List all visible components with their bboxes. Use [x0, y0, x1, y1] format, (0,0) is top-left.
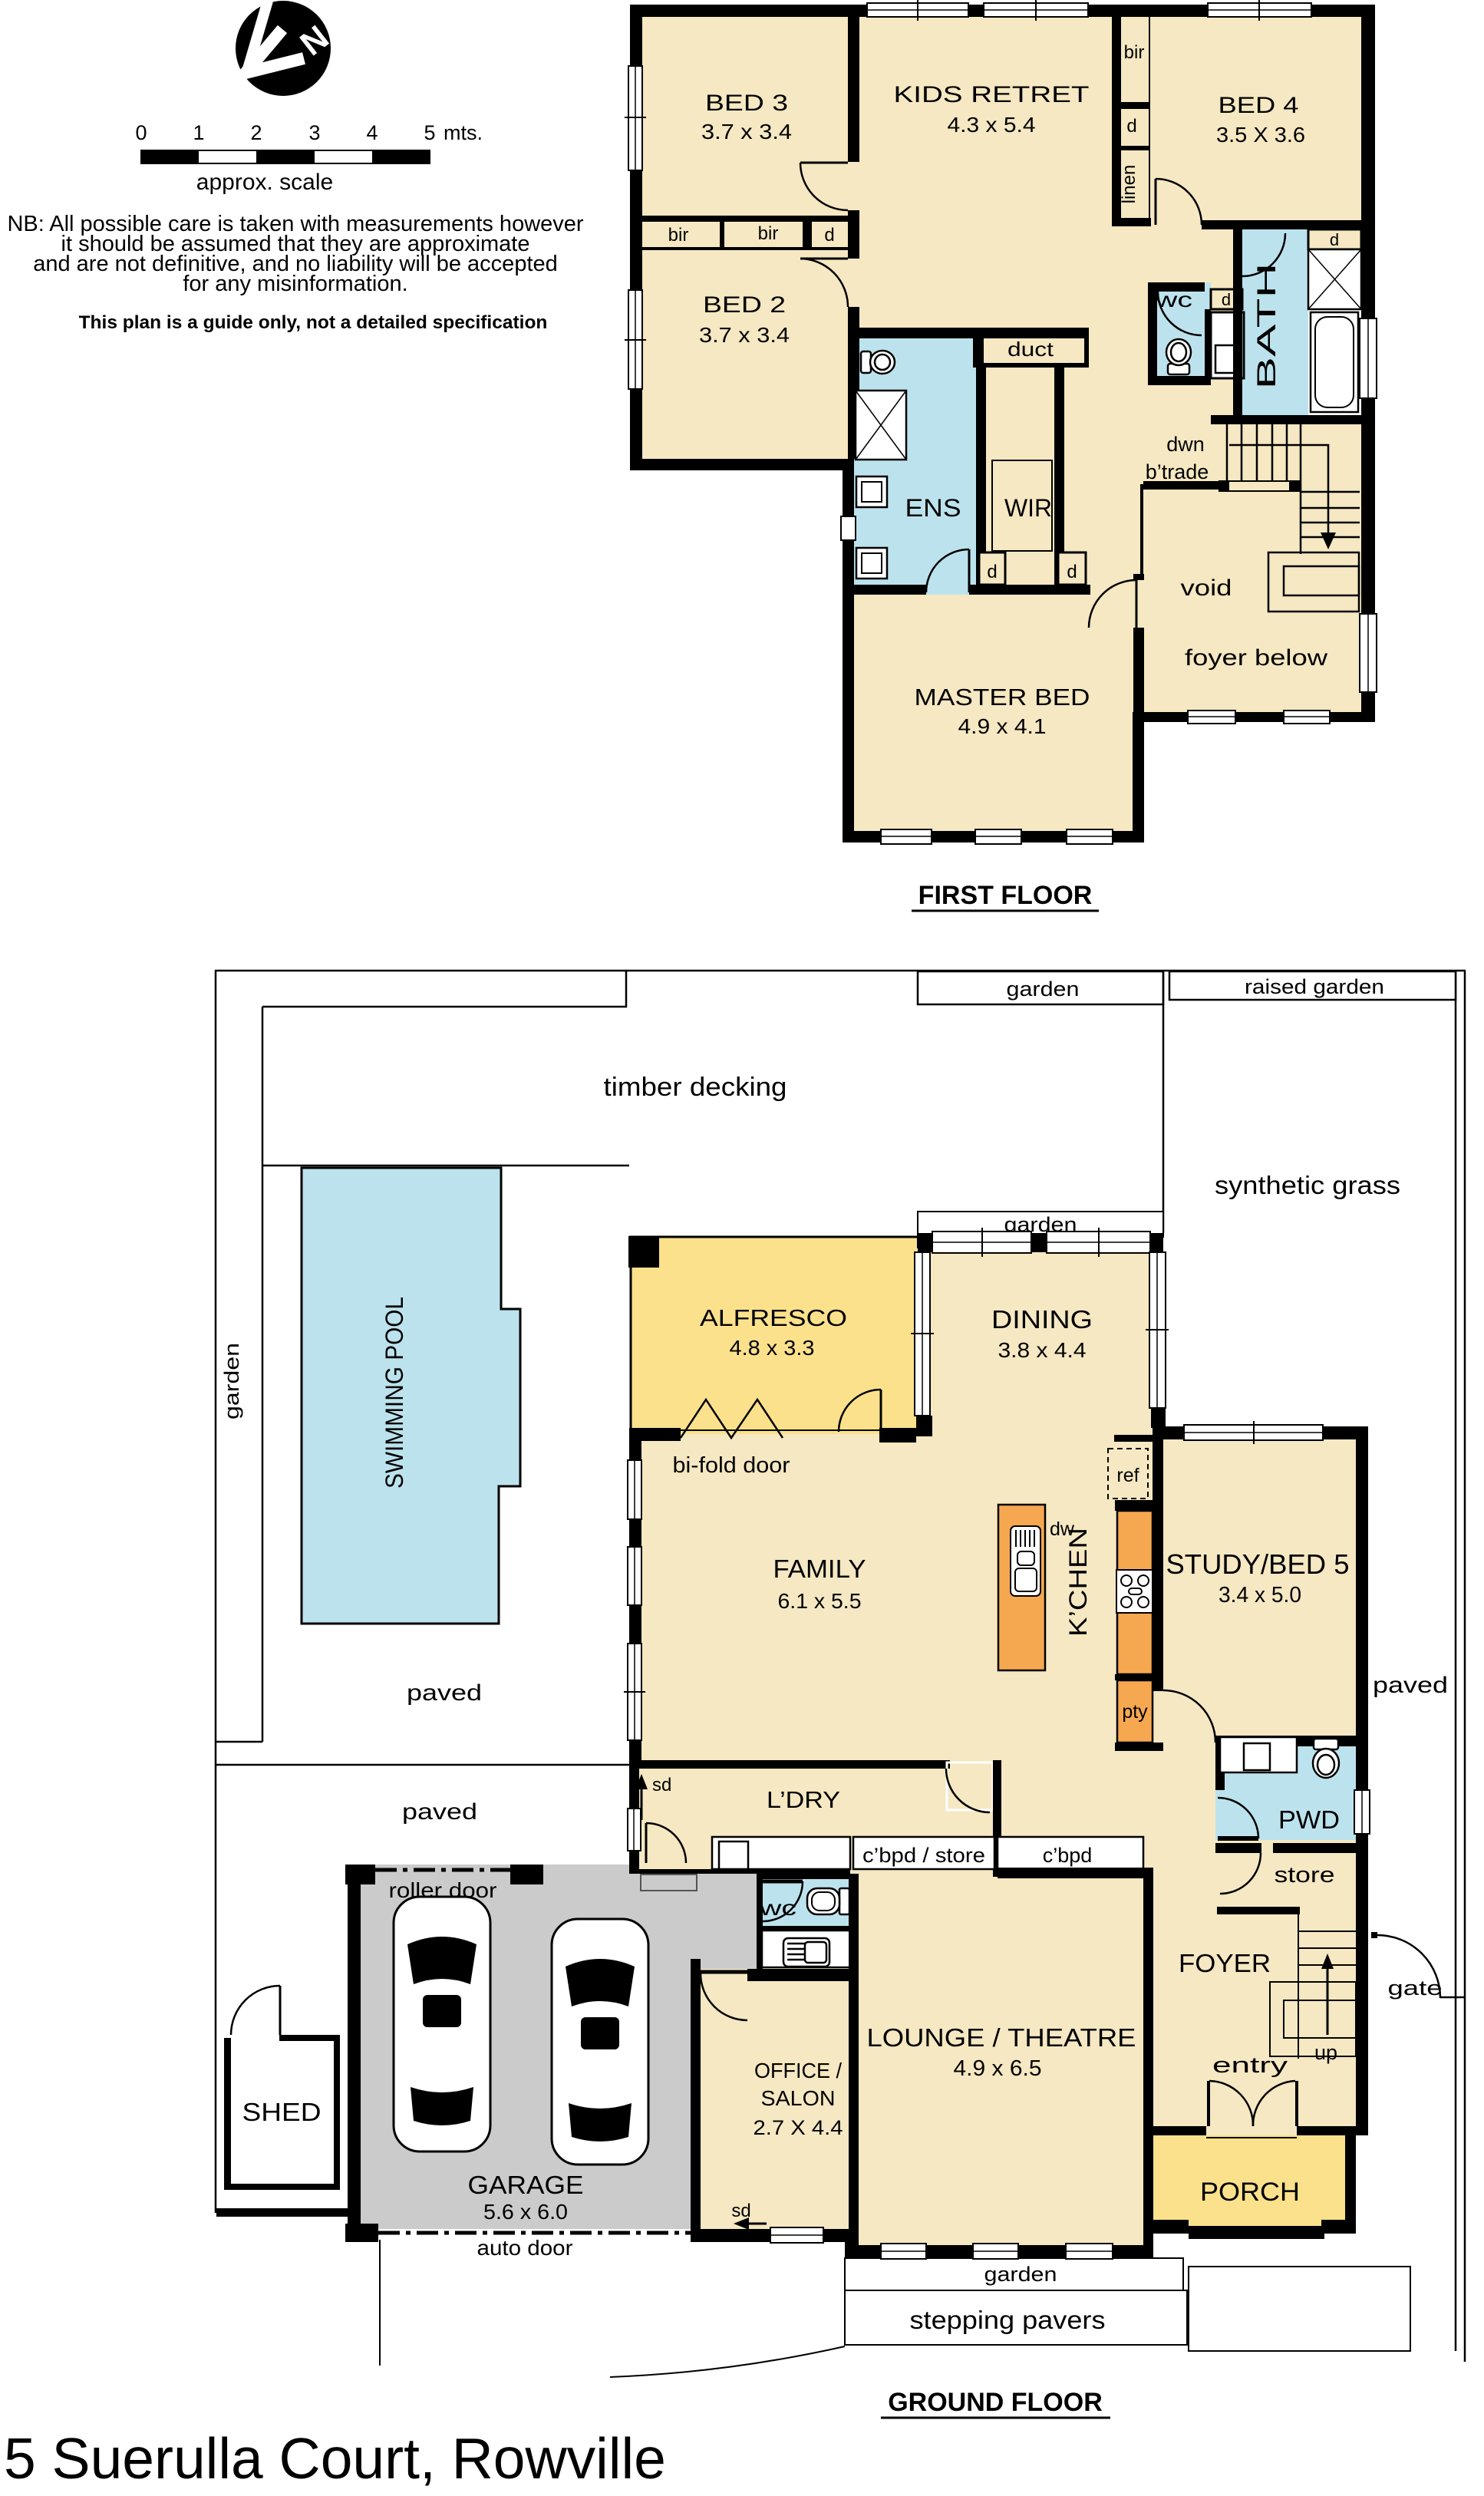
svg-text:auto door: auto door [477, 2236, 573, 2260]
svg-text:BED 3: BED 3 [705, 91, 788, 116]
svg-text:bir: bir [668, 225, 689, 246]
svg-text:4.9 x 6.5: 4.9 x 6.5 [954, 2056, 1042, 2081]
svg-text:1: 1 [193, 121, 204, 144]
svg-text:d: d [987, 562, 997, 582]
svg-text:garden: garden [1007, 978, 1080, 1001]
svg-text:c’bpd: c’bpd [1043, 1844, 1093, 1867]
svg-text:GROUND FLOOR: GROUND FLOOR [888, 2388, 1103, 2417]
svg-text:4.8 x 3.3: 4.8 x 3.3 [730, 1336, 815, 1360]
svg-text:3.7 x 3.4: 3.7 x 3.4 [701, 120, 792, 143]
svg-text:This plan is a guide only, not: This plan is a guide only, not a detaile… [79, 312, 548, 333]
svg-text:synthetic grass: synthetic grass [1215, 1171, 1400, 1199]
svg-text:BED 4: BED 4 [1219, 93, 1299, 118]
svg-text:foyer below: foyer below [1185, 645, 1327, 671]
svg-text:up: up [1314, 2041, 1337, 2064]
svg-text:STUDY/BED 5: STUDY/BED 5 [1166, 1548, 1350, 1580]
svg-text:3.7 x 3.4: 3.7 x 3.4 [699, 323, 790, 347]
svg-text:2: 2 [250, 121, 262, 144]
svg-text:b’trade: b’trade [1146, 460, 1209, 483]
svg-text:void: void [1181, 575, 1232, 601]
svg-text:store: store [1275, 1863, 1335, 1888]
svg-text:LOUNGE / THEATRE: LOUNGE / THEATRE [867, 2023, 1136, 2052]
svg-text:5: 5 [424, 121, 435, 144]
svg-text:ref: ref [1116, 1465, 1139, 1486]
svg-text:FAMILY: FAMILY [773, 1555, 866, 1583]
svg-text:d: d [1330, 230, 1339, 249]
svg-text:dwn: dwn [1166, 433, 1205, 456]
svg-text:OFFICE /: OFFICE / [754, 2059, 842, 2082]
svg-text:garden: garden [220, 1343, 243, 1419]
svg-text:FIRST FLOOR: FIRST FLOOR [918, 881, 1093, 910]
svg-text:paved: paved [407, 1680, 482, 1706]
svg-text:approx. scale: approx. scale [196, 170, 333, 195]
svg-text:duct: duct [1007, 338, 1054, 361]
svg-text:raised garden: raised garden [1245, 975, 1384, 998]
svg-text:PORCH: PORCH [1200, 2178, 1300, 2207]
svg-text:3.8 x 4.4: 3.8 x 4.4 [998, 1338, 1087, 1362]
svg-text:ALFRESCO: ALFRESCO [700, 1304, 847, 1331]
svg-text:mts.: mts. [444, 121, 483, 144]
svg-text:6.1 x 5.5: 6.1 x 5.5 [778, 1589, 862, 1613]
svg-text:KIDS RETRET: KIDS RETRET [894, 82, 1090, 107]
svg-text:wc: wc [1155, 288, 1192, 312]
svg-text:stepping pavers: stepping pavers [910, 2306, 1106, 2334]
svg-text:2.7 X 4.4: 2.7 X 4.4 [754, 2116, 843, 2139]
svg-text:3: 3 [308, 121, 320, 144]
svg-text:pty: pty [1122, 1701, 1148, 1723]
svg-text:bir: bir [1124, 42, 1145, 63]
svg-text:3.4 x 5.0: 3.4 x 5.0 [1219, 1583, 1301, 1607]
svg-text:d: d [824, 225, 834, 246]
svg-text:5.6 x 6.0: 5.6 x 6.0 [483, 2200, 568, 2224]
svg-text:d: d [1067, 562, 1077, 582]
svg-text:ENS: ENS [905, 494, 961, 522]
svg-text:5 Suerulla Court, Rowville: 5 Suerulla Court, Rowville [4, 2426, 666, 2491]
svg-text:paved: paved [1373, 1673, 1448, 1698]
svg-text:wc: wc [759, 1896, 796, 1920]
svg-text:bi-fold door: bi-fold door [673, 1453, 790, 1478]
svg-text:gate: gate [1388, 1977, 1443, 2000]
svg-text:WIR: WIR [1004, 494, 1052, 522]
svg-text:GARAGE: GARAGE [468, 2171, 584, 2199]
svg-text:BATH: BATH [1252, 263, 1281, 390]
svg-text:FOYER: FOYER [1179, 1949, 1271, 1977]
svg-text:DINING: DINING [991, 1305, 1093, 1334]
svg-text:timber decking: timber decking [604, 1073, 787, 1102]
svg-text:SHED: SHED [242, 2098, 322, 2126]
svg-text:L’DRY: L’DRY [767, 1786, 840, 1813]
svg-text:entry: entry [1212, 2053, 1288, 2078]
svg-text:SALON: SALON [761, 2086, 836, 2110]
svg-text:4.9 x 4.1: 4.9 x 4.1 [958, 714, 1047, 738]
svg-text:linen: linen [1119, 165, 1139, 204]
svg-text:3.5 X 3.6: 3.5 X 3.6 [1216, 123, 1305, 147]
svg-text:for any misinformation.: for any misinformation. [183, 272, 407, 296]
svg-text:sd: sd [652, 1775, 671, 1795]
svg-text:sd: sd [731, 2201, 750, 2221]
svg-text:d: d [1222, 290, 1231, 309]
svg-text:MASTER BED: MASTER BED [915, 684, 1090, 711]
svg-text:c’bpd / store: c’bpd / store [862, 1844, 985, 1867]
svg-text:0: 0 [135, 121, 147, 144]
svg-text:4.3 x 5.4: 4.3 x 5.4 [948, 113, 1036, 137]
svg-text:paved: paved [402, 1799, 477, 1825]
svg-text:d: d [1126, 116, 1136, 137]
svg-text:PWD: PWD [1278, 1805, 1340, 1834]
svg-text:4: 4 [366, 121, 378, 144]
svg-text:SWIMMING POOL: SWIMMING POOL [381, 1297, 408, 1489]
svg-text:garden: garden [984, 2263, 1057, 2286]
svg-text:BED 2: BED 2 [703, 292, 786, 318]
svg-text:K’CHEN: K’CHEN [1064, 1528, 1092, 1637]
svg-text:bir: bir [758, 223, 779, 244]
